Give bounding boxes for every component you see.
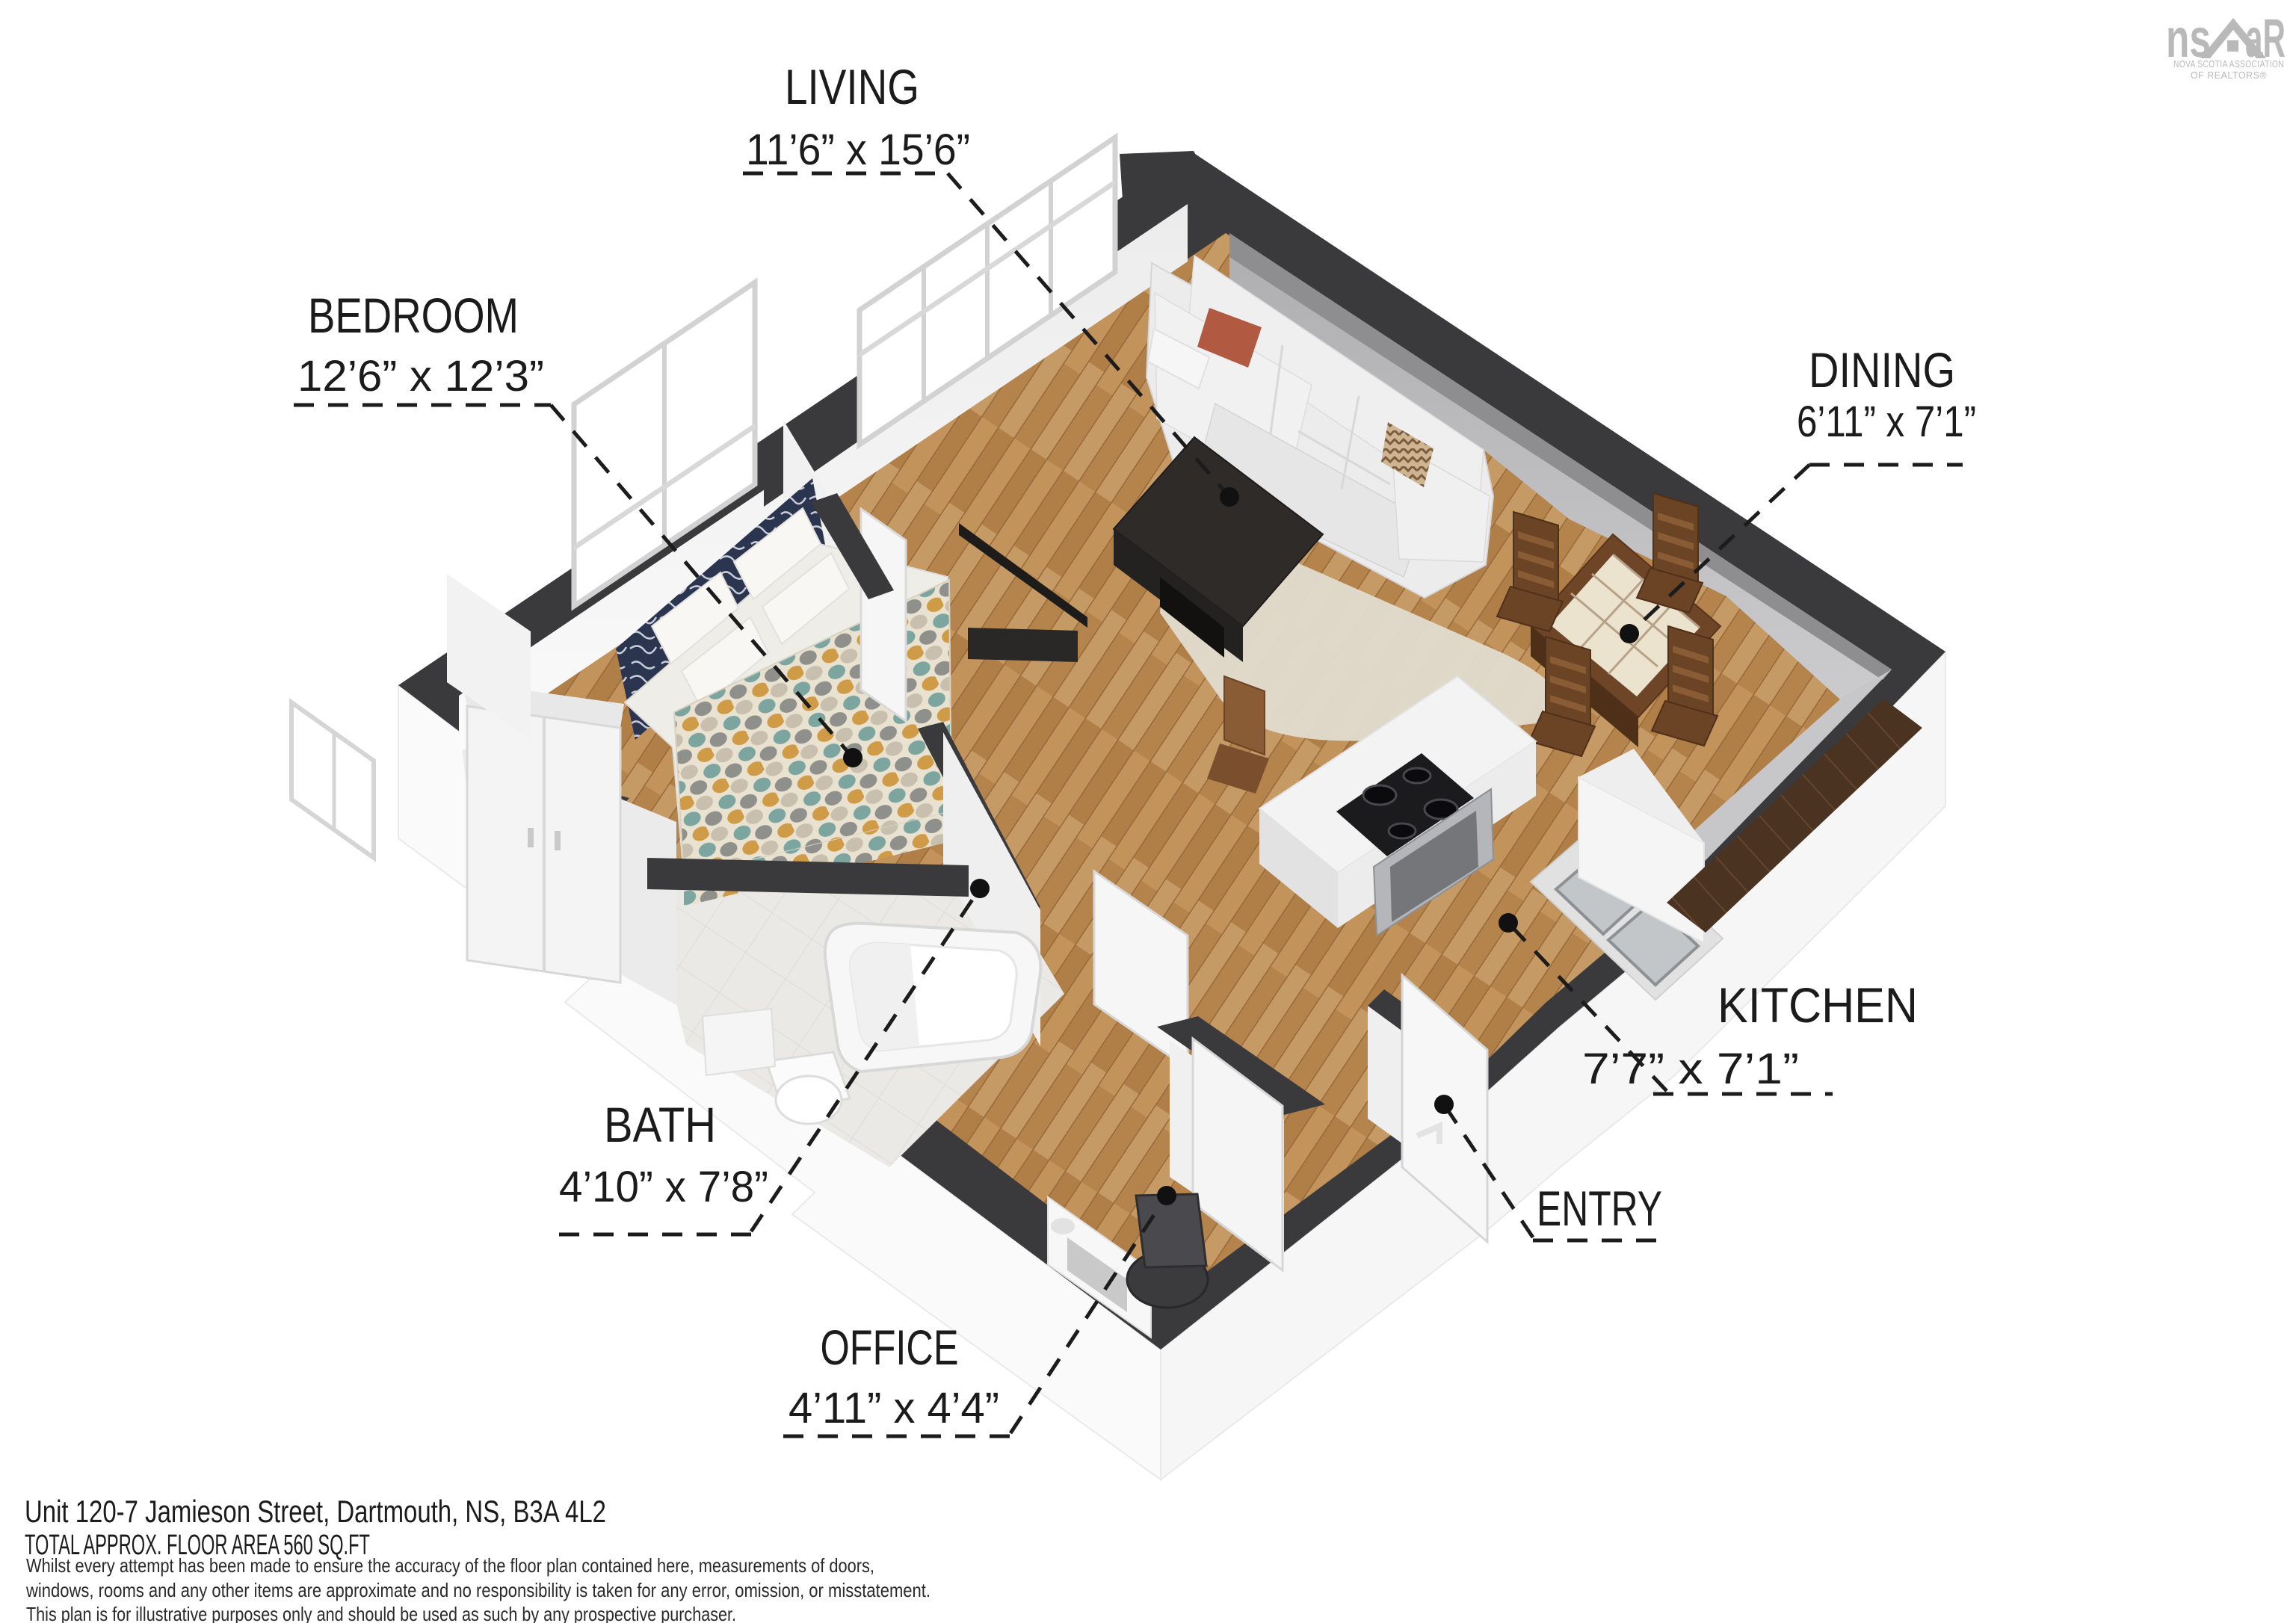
- svg-text:4’11” x 4’4”: 4’11” x 4’4”: [789, 1384, 999, 1432]
- svg-text:12’6” x 12’3”: 12’6” x 12’3”: [297, 352, 544, 401]
- svg-text:KITCHEN: KITCHEN: [1718, 977, 1918, 1033]
- svg-text:BATH: BATH: [604, 1097, 716, 1152]
- svg-text:BEDROOM: BEDROOM: [308, 288, 519, 343]
- svg-text:Whilst every attempt has been: Whilst every attempt has been made to en…: [26, 1554, 874, 1577]
- svg-text:LIVING: LIVING: [785, 59, 919, 114]
- svg-text:4’10” x 7’8”: 4’10” x 7’8”: [559, 1163, 768, 1211]
- svg-text:NOVA SCOTIA ASSOCIATION: NOVA SCOTIA ASSOCIATION: [2173, 59, 2284, 69]
- svg-text:This plan is for illustrative: This plan is for illustrative purposes o…: [26, 1603, 736, 1623]
- svg-text:11’6” x 15’6”: 11’6” x 15’6”: [746, 126, 970, 174]
- svg-text:windows, rooms and any other i: windows, rooms and any other items are a…: [25, 1579, 931, 1601]
- svg-text:Unit 120-7 Jamieson Street, Da: Unit 120-7 Jamieson Street, Dartmouth, N…: [25, 1494, 606, 1529]
- svg-text:7’7” x 7’1”: 7’7” x 7’1”: [1582, 1045, 1799, 1093]
- svg-text:6’11” x 7’1”: 6’11” x 7’1”: [1797, 398, 1976, 446]
- svg-text:ENTRY: ENTRY: [1537, 1181, 1662, 1236]
- svg-text:OF REALTORS®: OF REALTORS®: [2191, 70, 2268, 81]
- svg-text:DINING: DINING: [1809, 342, 1955, 398]
- svg-text:OFFICE: OFFICE: [821, 1320, 959, 1375]
